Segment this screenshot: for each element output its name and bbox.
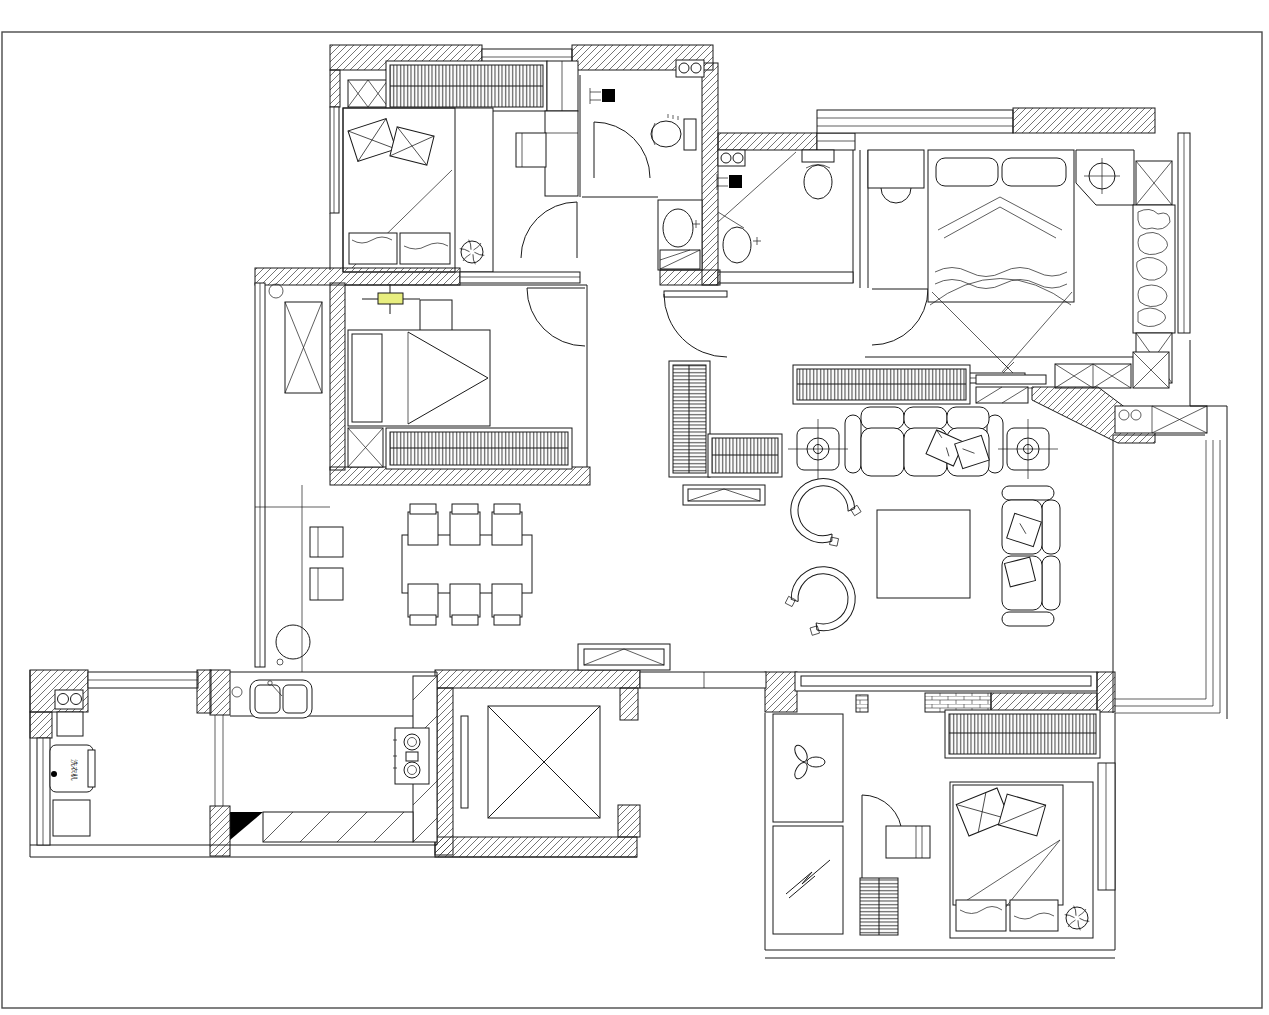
window-icon	[1098, 763, 1115, 890]
shoe-cabinet-icon	[708, 434, 782, 477]
light-fixture-highlight-icon	[362, 284, 420, 314]
living-south-wall	[765, 672, 1115, 712]
wardrobe-icon	[945, 710, 1100, 758]
armchair-icon	[778, 466, 867, 555]
balcony-cabinet	[1115, 406, 1207, 433]
gas-stove-icon	[393, 728, 429, 784]
door-swing-icon	[521, 202, 577, 258]
dining-chair-icon	[492, 584, 522, 625]
water-heater-icon	[276, 625, 310, 665]
door-swing-icon	[527, 288, 585, 346]
elevator-core	[435, 644, 766, 857]
door-swing-icon	[872, 289, 928, 345]
stool-icon	[310, 527, 343, 557]
toilet-icon	[802, 150, 834, 199]
floor-plan-svg: 洗衣机	[0, 0, 1269, 1015]
east-balcony	[1113, 340, 1227, 719]
door-swing-icon	[664, 291, 727, 357]
bathroom-1	[582, 60, 704, 270]
sofa-2-seat-icon	[1002, 486, 1060, 626]
dining-chair-icon	[492, 504, 522, 545]
entry	[660, 270, 782, 505]
x-cabinet-icon	[1133, 352, 1169, 388]
window-icon	[795, 672, 1097, 691]
tv-icon	[976, 375, 1046, 388]
desk-icon	[545, 111, 578, 196]
living-room	[778, 352, 1207, 644]
wash-basin-icon	[723, 227, 761, 263]
lightning-panel	[773, 826, 843, 934]
chair-icon	[516, 133, 546, 167]
elevator-icon	[488, 706, 600, 818]
counter-circles	[55, 690, 83, 709]
x-cabinet-icon	[348, 428, 383, 467]
wash-basin-icon	[658, 200, 702, 270]
dining-chair-icon	[408, 584, 438, 625]
window-icon	[37, 738, 50, 845]
floor-plan-canvas: 洗衣机	[0, 0, 1269, 1015]
side-table-planter-icon	[788, 419, 848, 479]
door-swing-icon	[594, 122, 650, 178]
counter-circles	[718, 150, 745, 166]
dining-chair-icon	[450, 504, 480, 545]
single-bed-icon	[348, 330, 490, 426]
brick-wall-pattern	[925, 693, 991, 712]
radiator	[860, 878, 898, 935]
exhaust-fan-panel	[773, 714, 843, 822]
window-icon	[330, 107, 339, 213]
dining-area	[310, 504, 532, 625]
single-bed-icon	[343, 108, 493, 272]
master-bedroom	[817, 108, 1190, 383]
flue-vent-icon	[578, 644, 670, 670]
corner-cabinet	[230, 812, 263, 840]
hanging-clothes-icon	[1133, 205, 1175, 333]
counter	[263, 812, 413, 842]
dining-chair-icon	[450, 584, 480, 625]
dining-chair-icon	[408, 504, 438, 545]
washing-machine-icon: 洗衣机	[50, 745, 95, 792]
x-cabinet-icon	[1136, 161, 1172, 205]
corner-lamp	[1076, 150, 1134, 205]
side-table-planter-icon	[998, 419, 1058, 479]
washing-machine-label: 洗衣机	[70, 759, 78, 781]
armchair-icon	[778, 554, 868, 644]
flue-vent-icon	[683, 485, 765, 505]
window-icon	[1115, 440, 1220, 713]
single-bed-icon	[950, 782, 1093, 938]
shower-head-icon	[717, 174, 742, 190]
x-cabinet-icon	[285, 302, 322, 393]
cabinet	[976, 387, 1028, 403]
nightstand	[868, 150, 924, 203]
kitchen	[210, 670, 437, 856]
x-cabinet-icon	[1055, 364, 1131, 388]
kitchen-sink-icon	[250, 680, 312, 718]
bathroom-2	[717, 133, 855, 283]
window-icon	[817, 110, 1013, 133]
coffee-table-icon	[877, 510, 970, 598]
sofa-3-seat-icon	[845, 407, 1003, 476]
shower-head-icon	[590, 88, 615, 104]
bedroom-3	[765, 710, 1115, 958]
wardrobe-icon	[386, 61, 547, 111]
sliding-door	[215, 715, 223, 806]
west-balcony	[255, 283, 330, 672]
wardrobe-icon	[386, 428, 572, 469]
x-cabinet-icon	[348, 80, 388, 107]
toilet-icon	[651, 114, 696, 150]
counter-circles	[676, 60, 704, 77]
double-bed-icon	[928, 150, 1074, 374]
desk-icon	[886, 826, 930, 858]
tv-cabinet-icon	[793, 365, 970, 404]
stool-icon	[310, 568, 343, 600]
shoe-cabinet-icon	[669, 361, 710, 477]
brick-wall-pattern	[856, 695, 868, 712]
elevator-door-slab	[461, 716, 468, 808]
